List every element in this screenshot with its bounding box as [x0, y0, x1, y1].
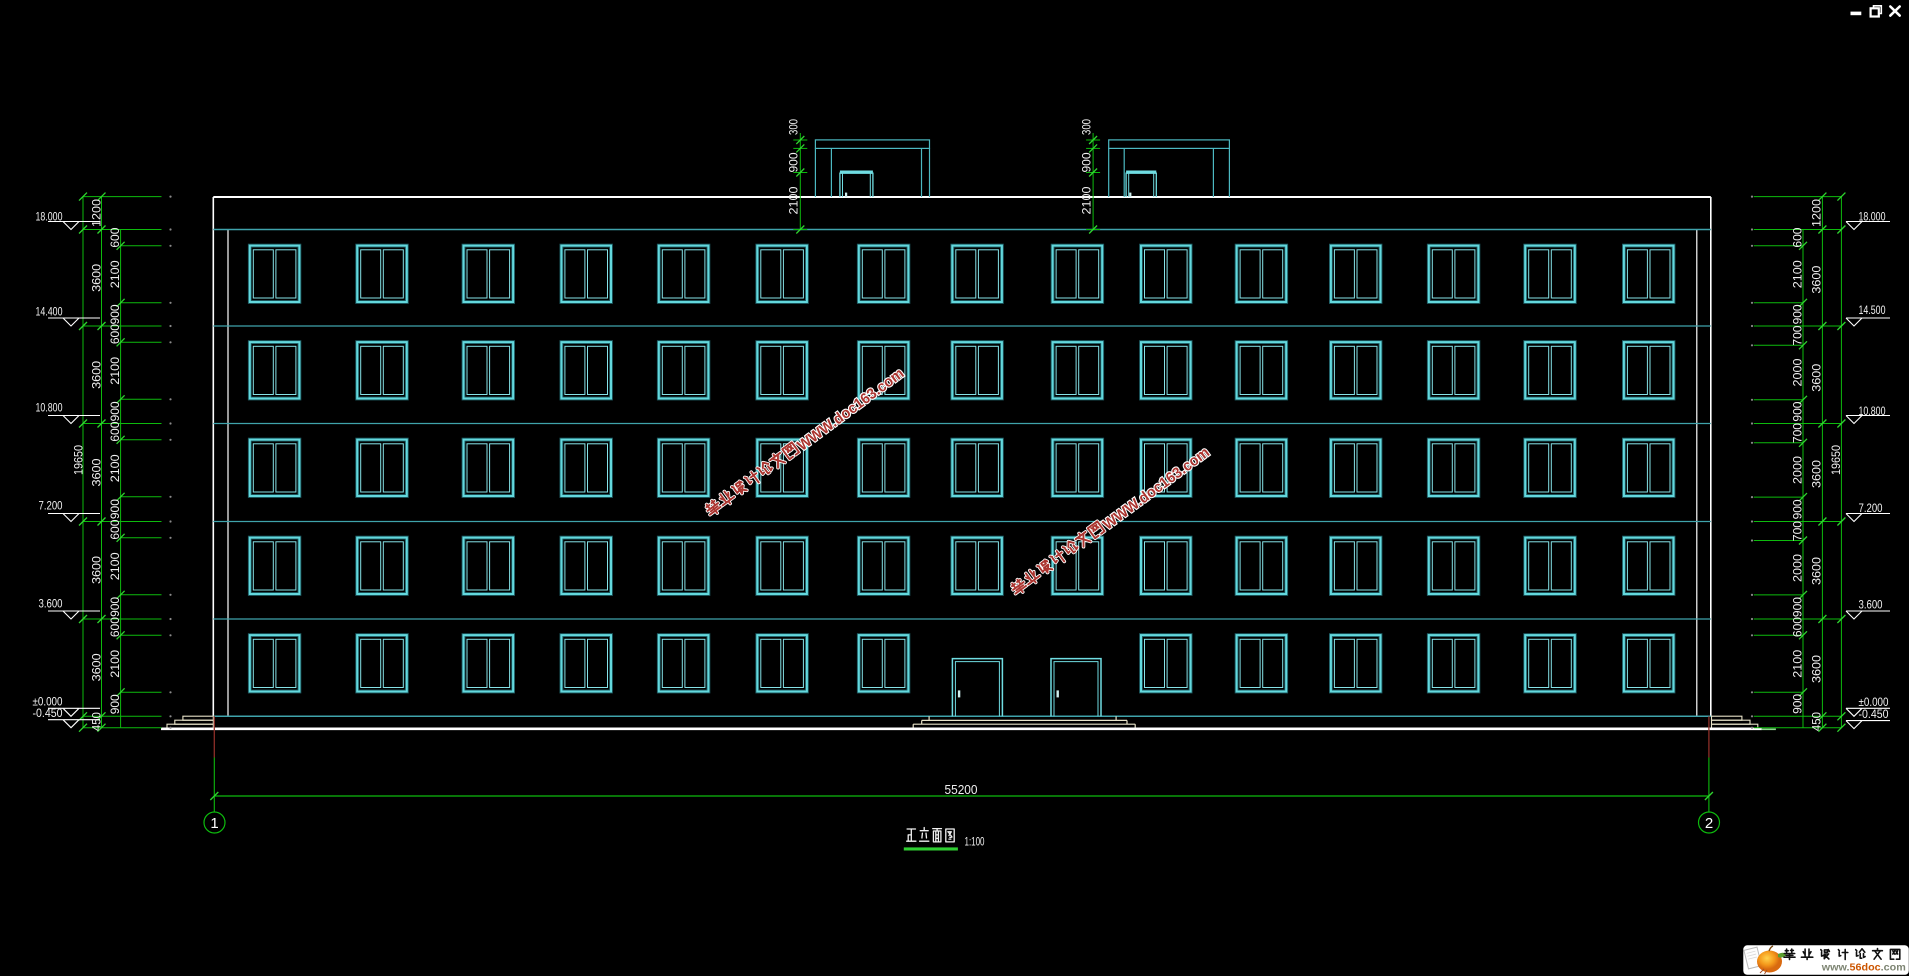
svg-text:7.200: 7.200	[39, 498, 63, 512]
svg-text:19650: 19650	[1831, 445, 1843, 475]
svg-text:900: 900	[1793, 304, 1805, 324]
svg-text:900: 900	[1793, 499, 1805, 519]
svg-text:-0.450: -0.450	[1859, 707, 1889, 721]
svg-text:900: 900	[110, 304, 122, 324]
svg-text:700: 700	[1793, 326, 1805, 346]
svg-text:1: 1	[210, 815, 218, 832]
svg-text:900: 900	[110, 499, 122, 519]
svg-text:2000: 2000	[1793, 456, 1805, 484]
svg-text:14.400: 14.400	[36, 304, 63, 318]
svg-text:19650: 19650	[74, 445, 86, 475]
svg-text:600: 600	[110, 617, 122, 637]
svg-text:450: 450	[1812, 712, 1824, 731]
svg-text:900: 900	[110, 694, 122, 714]
svg-text:600: 600	[110, 520, 122, 540]
svg-text:10.800: 10.800	[36, 401, 63, 415]
svg-text:14.500: 14.500	[1859, 303, 1886, 317]
svg-text:900: 900	[1793, 694, 1805, 714]
svg-text:2000: 2000	[1793, 554, 1805, 582]
svg-text:3600: 3600	[1812, 460, 1824, 488]
svg-text:900: 900	[110, 401, 122, 421]
svg-text:2100: 2100	[110, 552, 122, 580]
svg-text:55200: 55200	[945, 782, 978, 797]
svg-text:2100: 2100	[1793, 260, 1805, 288]
svg-text:2100: 2100	[1081, 187, 1093, 215]
svg-text:900: 900	[110, 597, 122, 617]
svg-text:600: 600	[1793, 228, 1805, 248]
svg-text:300: 300	[789, 119, 801, 135]
svg-text:900: 900	[1081, 153, 1093, 173]
svg-text:600: 600	[1793, 617, 1805, 637]
svg-text:450: 450	[92, 712, 104, 731]
svg-text:700: 700	[1793, 423, 1805, 443]
svg-text:3600: 3600	[92, 361, 104, 389]
svg-text:3600: 3600	[1812, 557, 1824, 585]
svg-text:700: 700	[1793, 521, 1805, 541]
svg-text:-0.450: -0.450	[33, 706, 63, 720]
svg-text:2: 2	[1705, 815, 1713, 832]
svg-text:600: 600	[110, 422, 122, 442]
svg-text:2100: 2100	[110, 650, 122, 678]
svg-text:3600: 3600	[92, 653, 104, 681]
svg-text:2100: 2100	[110, 454, 122, 482]
svg-text:1:100: 1:100	[965, 835, 985, 849]
svg-text:7.200: 7.200	[1859, 501, 1883, 515]
svg-text:2100: 2100	[110, 260, 122, 288]
svg-text:2100: 2100	[110, 357, 122, 385]
svg-text:3600: 3600	[1812, 266, 1824, 294]
svg-text:2100: 2100	[1793, 650, 1805, 678]
svg-text:300: 300	[1081, 119, 1093, 135]
svg-text:1200: 1200	[1812, 199, 1824, 227]
svg-text:2000: 2000	[1793, 359, 1805, 387]
svg-text:www.56doc.com: www.56doc.com	[1821, 962, 1906, 974]
svg-text:600: 600	[110, 228, 122, 248]
svg-text:3600: 3600	[92, 264, 104, 292]
svg-text:1200: 1200	[92, 199, 104, 227]
svg-text:900: 900	[1793, 402, 1805, 422]
svg-text:600: 600	[110, 324, 122, 344]
svg-text:900: 900	[789, 153, 801, 173]
svg-text:3600: 3600	[92, 459, 104, 487]
svg-text:900: 900	[1793, 597, 1805, 617]
svg-text:3600: 3600	[1812, 364, 1824, 392]
svg-text:3.600: 3.600	[39, 596, 63, 610]
svg-text:3.600: 3.600	[1859, 597, 1883, 611]
svg-text:3600: 3600	[1812, 655, 1824, 683]
svg-text:3600: 3600	[92, 556, 104, 584]
svg-text:2100: 2100	[789, 187, 801, 215]
